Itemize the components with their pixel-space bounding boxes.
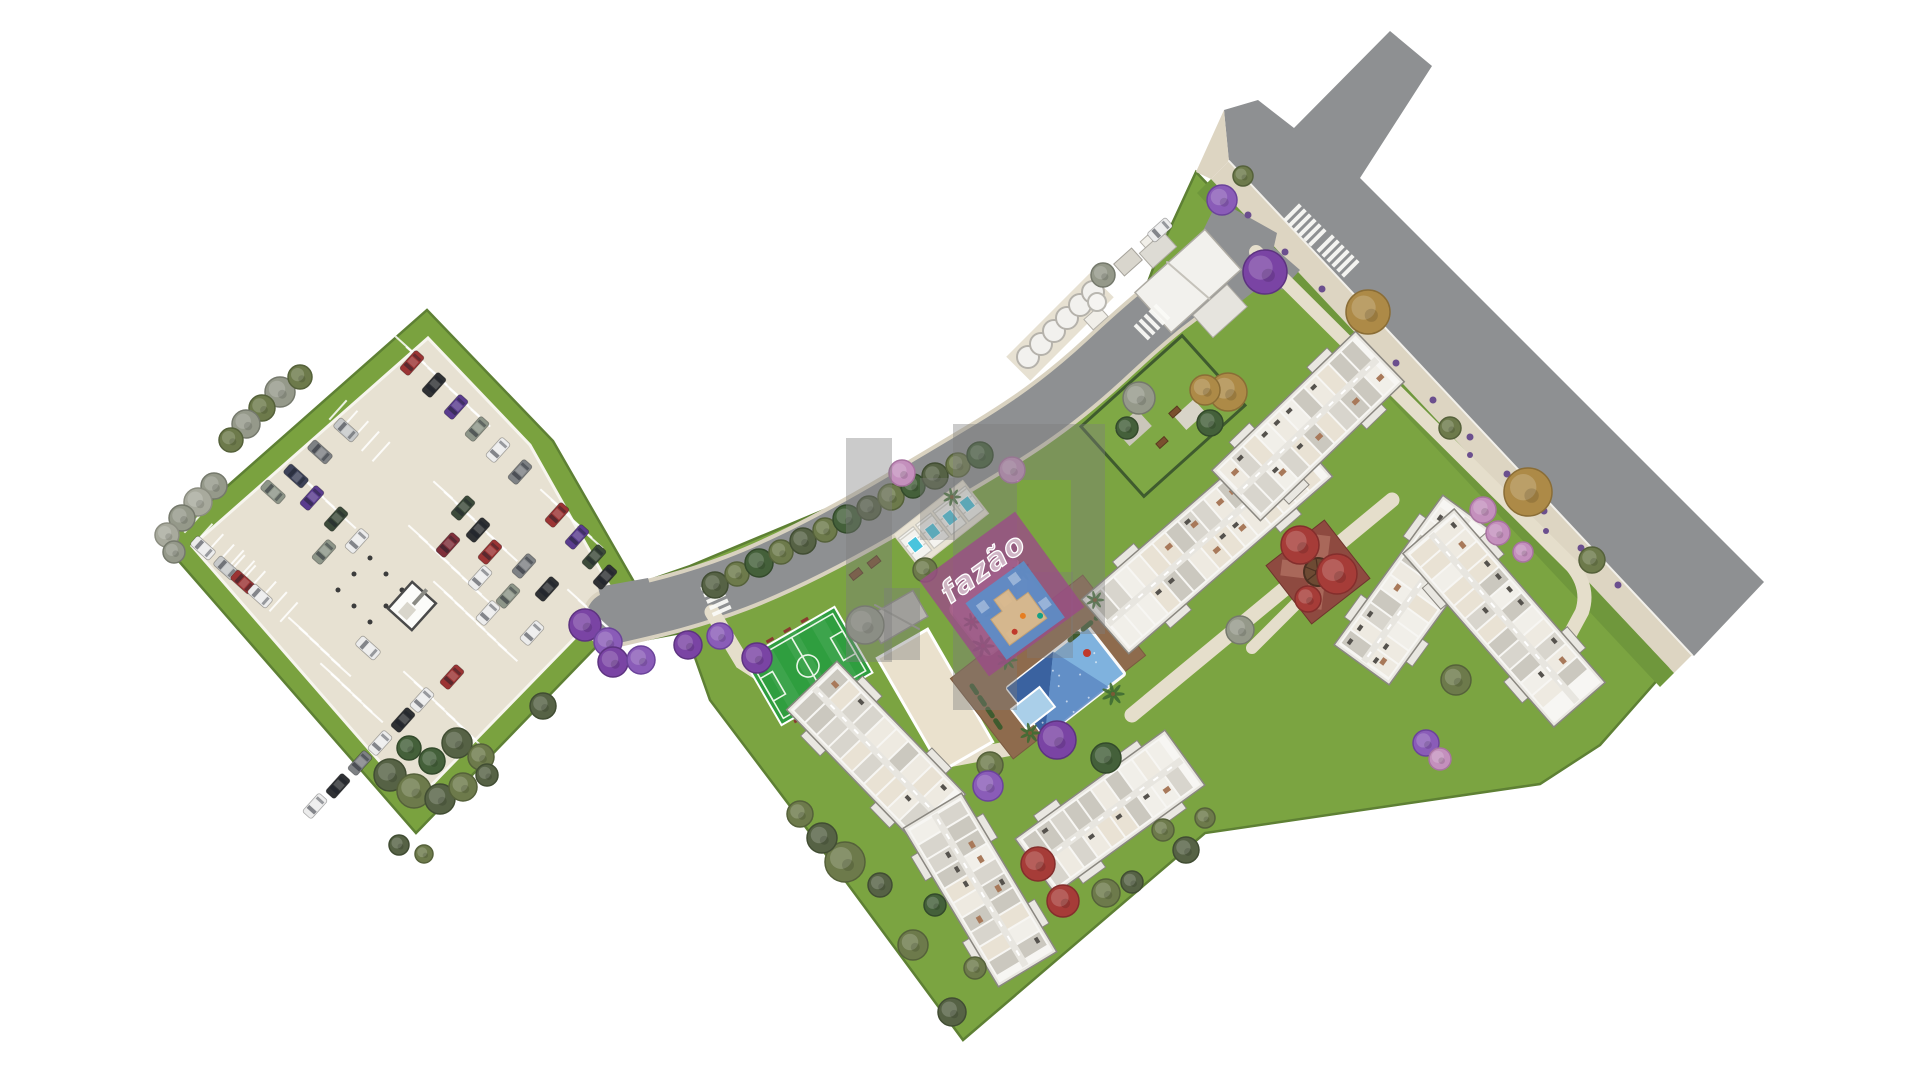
tree-purple: [598, 647, 628, 677]
tree-olive: [449, 773, 477, 801]
tree-purple: [742, 643, 772, 673]
tree-dkolive: [476, 764, 498, 786]
tree-red: [1295, 586, 1321, 612]
tree-pink: [1429, 748, 1451, 770]
parked-car: [302, 793, 328, 820]
tree-olive: [1441, 665, 1471, 695]
tree-olive: [415, 845, 433, 863]
tree-dkgreen: [1116, 417, 1138, 439]
tree-purple2: [707, 623, 733, 649]
tree-dkolive: [1173, 837, 1199, 863]
tree-purple: [1243, 250, 1287, 294]
tree-dkgreen: [1091, 743, 1121, 773]
tree-dkolive: [1121, 871, 1143, 893]
tree-red: [1047, 885, 1079, 917]
tree-red: [1317, 554, 1357, 594]
tree-golden: [1504, 468, 1552, 516]
masterplan-canvas: fazão: [0, 0, 1920, 1080]
tree-grayg: [1091, 263, 1115, 287]
tree-pink: [889, 460, 915, 486]
tree-olive: [769, 540, 793, 564]
tree-dkolive: [868, 873, 892, 897]
tree-olive: [1195, 808, 1215, 828]
tree-olive: [1152, 819, 1174, 841]
tree-grayg: [1123, 382, 1155, 414]
tree-dkolive: [442, 728, 472, 758]
tree-dkgreen: [397, 736, 421, 760]
tree-dkolive: [389, 835, 409, 855]
tree-grayg: [1226, 616, 1254, 644]
tree-pink: [1470, 497, 1496, 523]
tree-purple2: [627, 646, 655, 674]
tree-dkolive: [938, 998, 966, 1026]
tree-pink: [1513, 542, 1533, 562]
tree-purple: [1038, 721, 1076, 759]
tree-dkgreen: [924, 894, 946, 916]
tree-purple2: [973, 771, 1003, 801]
tree-pink: [1486, 521, 1510, 545]
tree-olive: [219, 428, 243, 452]
tree-olive: [787, 801, 813, 827]
tree-golden: [1346, 290, 1390, 334]
tree-olive: [898, 930, 928, 960]
parked-car: [325, 773, 351, 800]
tree-olive: [964, 957, 986, 979]
tree-olive: [1092, 879, 1120, 907]
tree-purple: [674, 631, 702, 659]
tree-red: [1281, 526, 1319, 564]
tree-purple2: [1207, 185, 1237, 215]
tree-dkolive: [702, 572, 728, 598]
tree-grayg: [163, 541, 185, 563]
tree-dkgreen: [419, 748, 445, 774]
tree-dkgreen: [1197, 410, 1223, 436]
tree-golden: [1190, 375, 1220, 405]
tree-olive: [1579, 547, 1605, 573]
tree-olive: [288, 365, 312, 389]
tree-olive: [1439, 417, 1461, 439]
pool-float: [1083, 649, 1091, 657]
tree-dkolive: [790, 528, 816, 554]
trash-enclosure: [1114, 248, 1143, 276]
water-tank: [1088, 293, 1106, 311]
site-plan-image: fazão: [0, 0, 1920, 1080]
tree-olive: [1233, 166, 1253, 186]
tree-red: [1021, 847, 1055, 881]
tree-dkolive: [807, 823, 837, 853]
tree-dkolive: [530, 693, 556, 719]
